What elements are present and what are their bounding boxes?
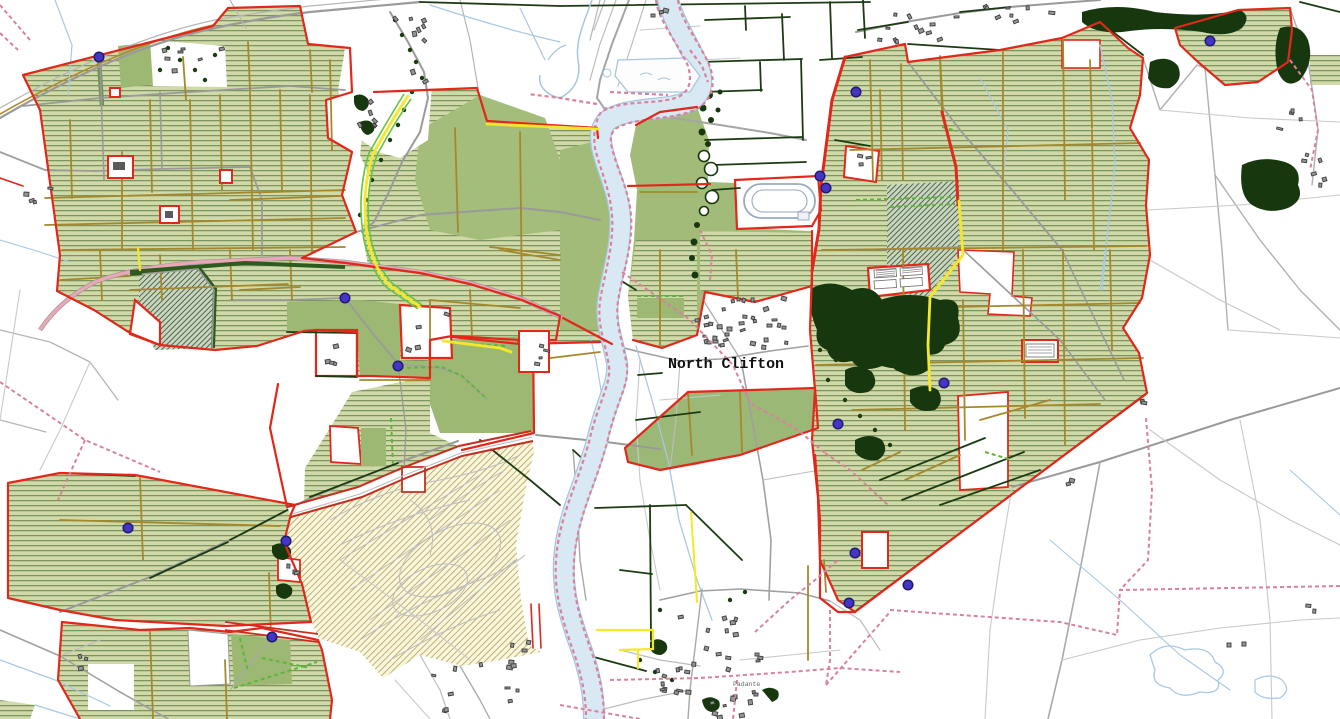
svg-text:North Clifton: North Clifton	[668, 356, 784, 373]
svg-text:Padante: Padante	[733, 681, 760, 688]
